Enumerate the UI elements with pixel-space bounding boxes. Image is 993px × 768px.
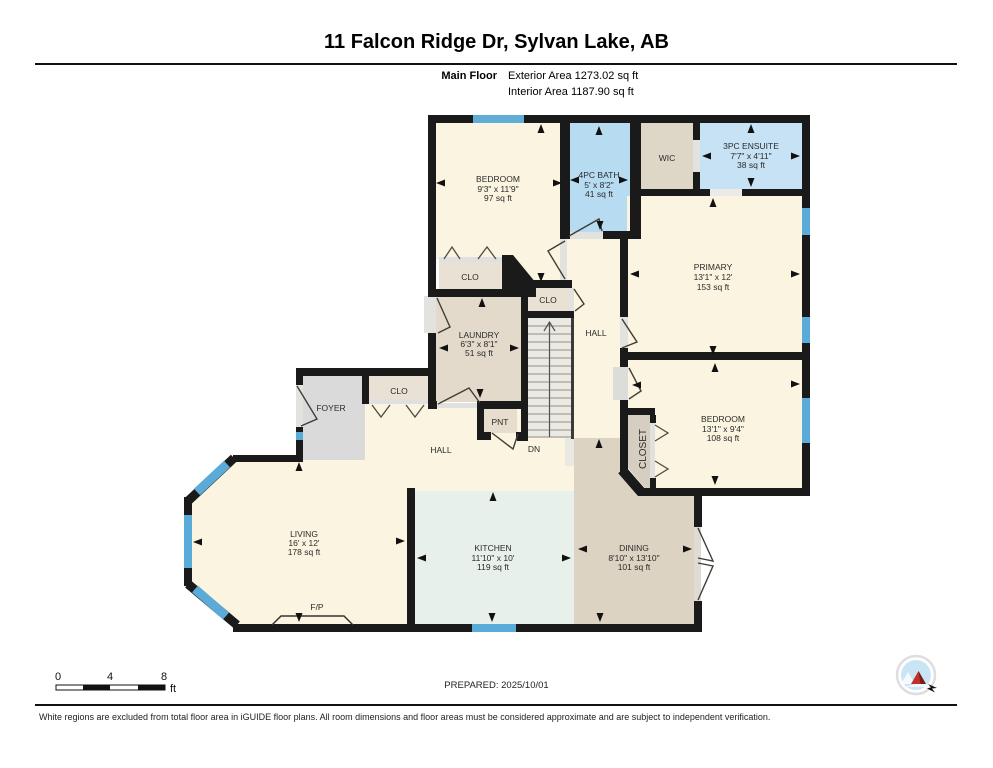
svg-text:97 sq ft: 97 sq ft [484,193,513,203]
svg-text:PRIMARY: PRIMARY [694,262,733,272]
svg-text:153 sq ft: 153 sq ft [697,282,730,292]
svg-text:BEDROOM: BEDROOM [701,414,745,424]
svg-text:CLO: CLO [539,295,557,305]
svg-text:3PC ENSUITE: 3PC ENSUITE [723,141,779,151]
svg-text:108 sq ft: 108 sq ft [707,433,740,443]
svg-text:HALL: HALL [430,445,452,455]
svg-text:DINING: DINING [619,543,649,553]
svg-text:FOYER: FOYER [316,403,345,413]
svg-text:CLO: CLO [461,272,479,282]
svg-text:41 sq ft: 41 sq ft [585,189,614,199]
svg-text:CLOSET: CLOSET [638,429,649,469]
svg-text:178 sq ft: 178 sq ft [288,547,321,557]
svg-text:PNT: PNT [492,417,509,427]
svg-text:BEDROOM: BEDROOM [476,174,520,184]
svg-text:4PC BATH: 4PC BATH [579,170,620,180]
svg-text:51 sq ft: 51 sq ft [465,348,494,358]
svg-text:DN: DN [528,444,540,454]
svg-text:13'1" x 12': 13'1" x 12' [694,272,733,282]
svg-text:38 sq ft: 38 sq ft [737,160,766,170]
svg-text:WIC: WIC [659,153,676,163]
svg-text:HALL: HALL [585,328,607,338]
svg-text:KITCHEN: KITCHEN [474,543,511,553]
svg-text:F/P: F/P [310,602,324,612]
svg-text:119 sq ft: 119 sq ft [477,562,510,572]
svg-text:CLO: CLO [390,386,408,396]
svg-text:101 sq ft: 101 sq ft [618,562,651,572]
